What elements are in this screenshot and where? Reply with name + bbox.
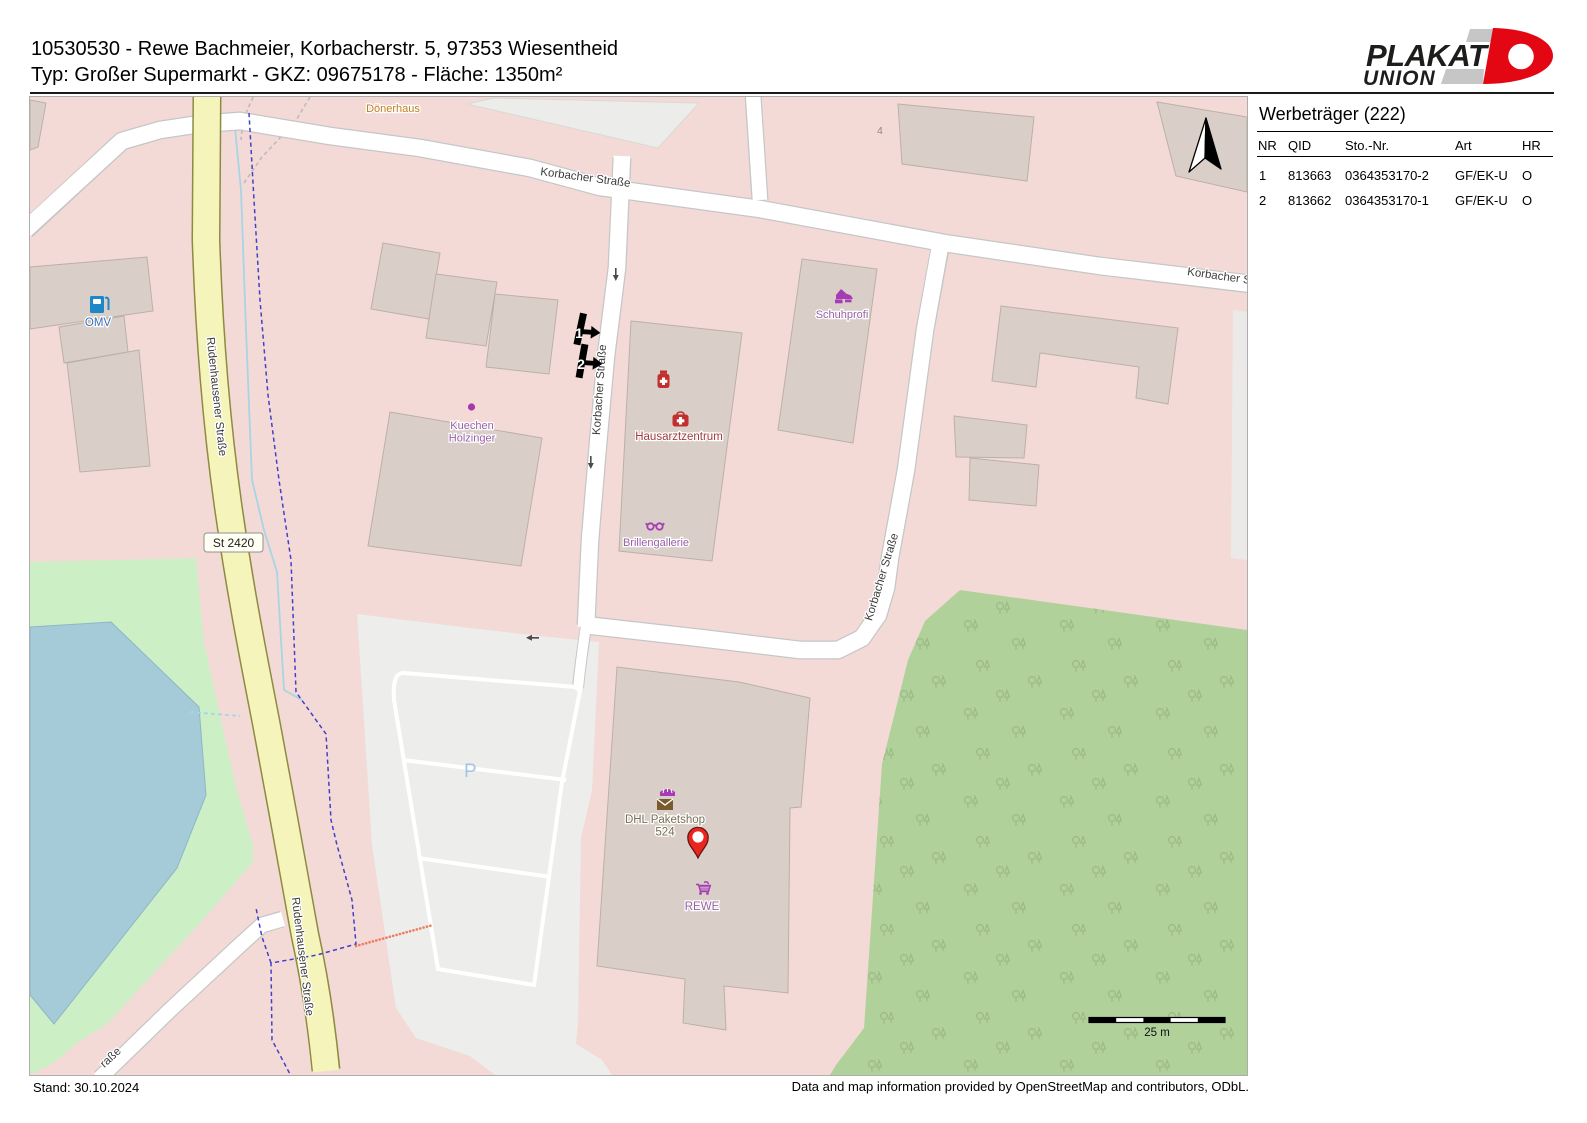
svg-text:Hausarztzentrum: Hausarztzentrum	[635, 431, 723, 443]
svg-text:DHL Paketshop: DHL Paketshop	[625, 814, 705, 826]
svg-text:1: 1	[575, 325, 583, 341]
svg-text:Brillengallerie: Brillengallerie	[623, 537, 689, 549]
svg-text:Kuechen: Kuechen	[450, 420, 493, 432]
svg-text:Holzinger: Holzinger	[449, 433, 496, 445]
svg-text:2: 2	[577, 356, 585, 372]
svg-text:St 2420: St 2420	[213, 536, 255, 550]
svg-text:524: 524	[655, 827, 675, 839]
svg-text:OMV: OMV	[85, 317, 112, 329]
svg-text:Schuhprofi: Schuhprofi	[816, 309, 869, 321]
svg-text:REWE: REWE	[685, 901, 720, 913]
svg-text:Dönerhaus: Dönerhaus	[366, 103, 420, 115]
svg-text:25 m: 25 m	[1144, 1027, 1170, 1039]
svg-text:UNION: UNION	[1363, 67, 1436, 90]
svg-text:P: P	[464, 761, 477, 782]
svg-text:4: 4	[877, 125, 883, 137]
